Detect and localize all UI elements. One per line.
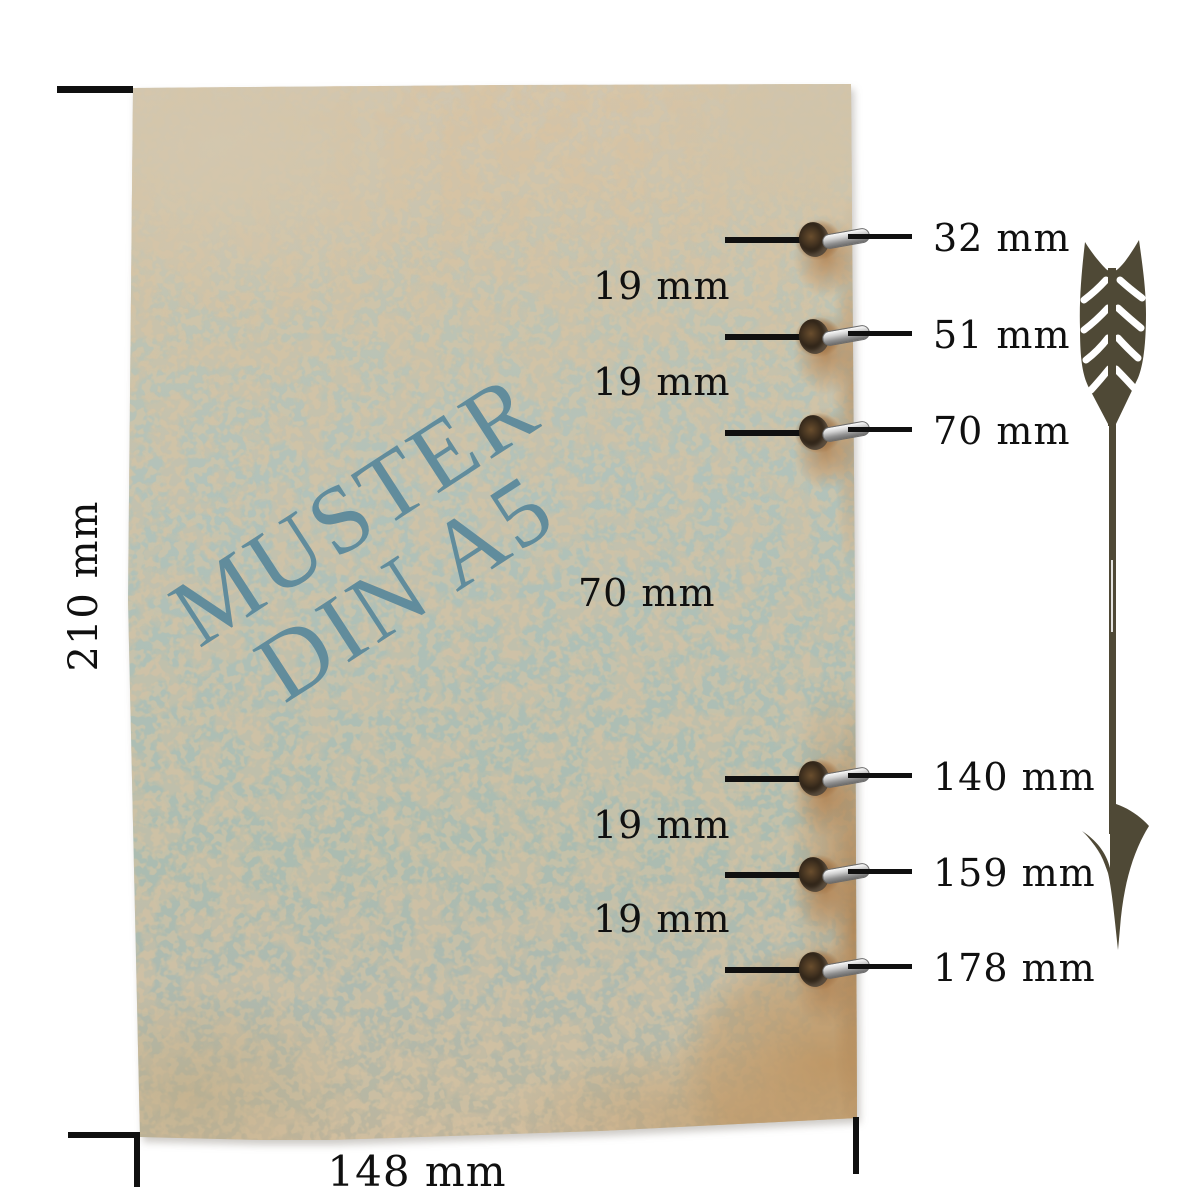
tick-top-left: [57, 86, 133, 93]
din-a5-measurement-diagram: MUSTER DIN A5 32 mm 51 mm 70 mm 140 mm: [0, 0, 1200, 1200]
gap-label: 70 mm: [578, 569, 716, 617]
measure-line: [848, 773, 912, 778]
measure-line: [725, 430, 807, 436]
hole-distance-label: 32 mm: [933, 214, 1071, 262]
gap-label: 19 mm: [593, 262, 731, 310]
tick-bottom-left-h: [68, 1132, 138, 1138]
measure-line: [725, 872, 807, 878]
measure-line: [725, 237, 807, 243]
gap-label: 19 mm: [593, 358, 731, 406]
measure-line: [848, 964, 912, 969]
measure-line: [848, 869, 912, 874]
gap-label: 19 mm: [593, 895, 731, 943]
height-dimension-label: 210 mm: [60, 501, 108, 672]
measure-line: [848, 331, 912, 336]
gap-label: 19 mm: [593, 801, 731, 849]
measure-line: [725, 334, 807, 340]
measure-line: [848, 234, 912, 239]
hole-distance-label: 51 mm: [933, 311, 1071, 359]
measure-line: [725, 776, 807, 782]
width-dimension-label: 148 mm: [327, 1148, 506, 1196]
tick-bottom-right-v: [853, 1117, 859, 1174]
measure-line: [725, 967, 807, 973]
arrow-down-icon: [1058, 228, 1168, 958]
tick-bottom-left-v: [134, 1132, 140, 1187]
hole-distance-label: 70 mm: [933, 407, 1071, 455]
measure-line: [848, 427, 912, 432]
